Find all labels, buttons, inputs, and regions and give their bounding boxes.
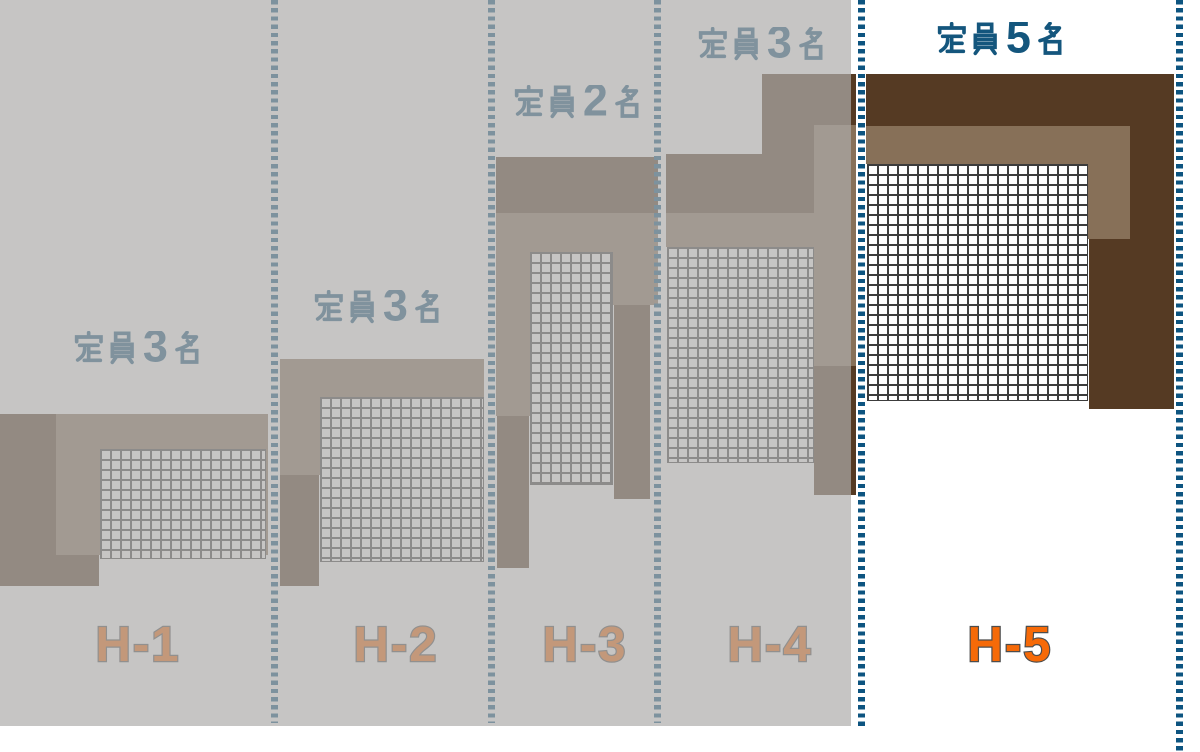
- svg-text:H-5: H-5: [968, 620, 1053, 670]
- svg-text:5: 5: [1006, 22, 1031, 57]
